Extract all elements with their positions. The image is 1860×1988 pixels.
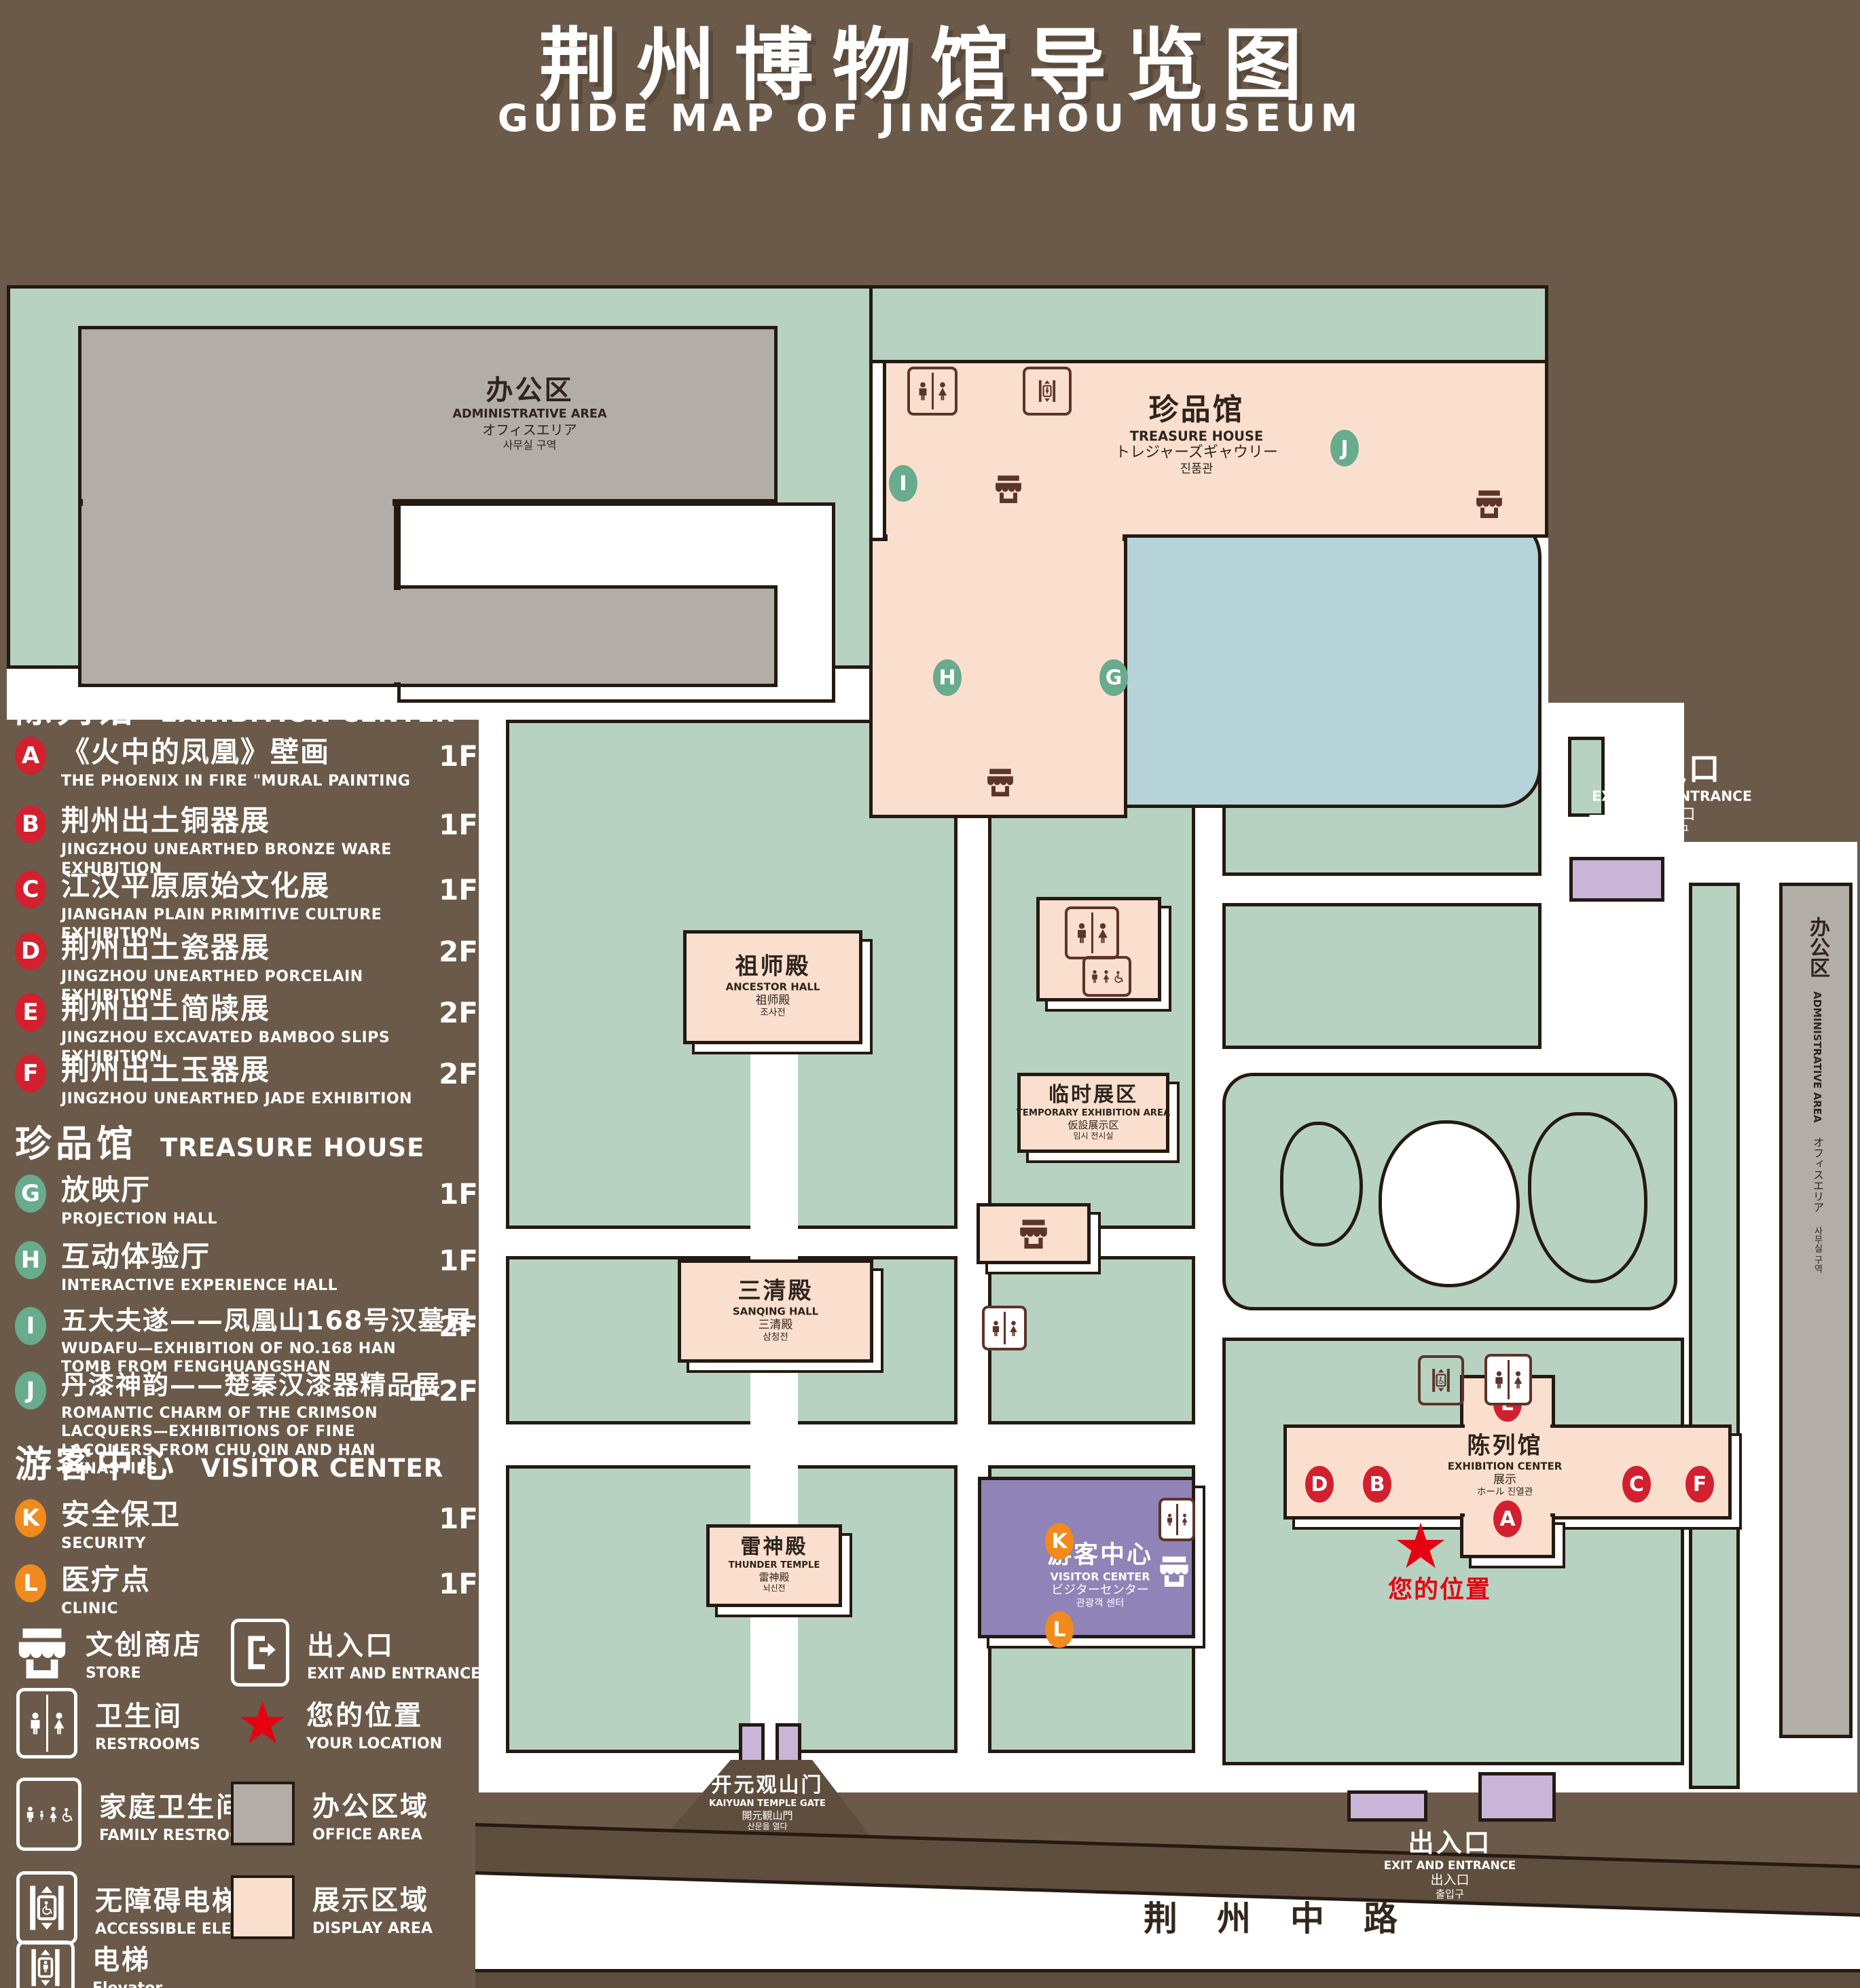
accessible-elevator-icon [16, 1871, 77, 1945]
thunder-temple-label: 雷神殿THUNDER TEMPLE 雷神殿뇌신전 [729, 1535, 820, 1594]
map-badge-A: A [1493, 1501, 1522, 1537]
restrooms-icon [1065, 906, 1119, 959]
badge-h: H [15, 1241, 46, 1279]
badge-l: L [15, 1564, 46, 1602]
exit-bottom-gatehouse-east [1478, 1772, 1556, 1822]
legend-item-l: L 医疗点CLINIC 1F [15, 1564, 482, 1619]
elevator-icon [16, 1940, 75, 1988]
guide-map-poster: 荆州博物馆导览图 GUIDE MAP OF JINGZHOU MUSEUM 办公… [0, 0, 1860, 1988]
store-icon [1019, 1218, 1048, 1249]
store-icon [1475, 489, 1503, 519]
your-location-label: 您的位置 [1388, 1570, 1491, 1605]
exit-icon [231, 1619, 289, 1687]
your-location-star-icon: ★ [1393, 1515, 1448, 1578]
temple-axis-path [750, 1042, 798, 1798]
garden-pond [1379, 1120, 1520, 1287]
legend-symbol-store: 文创商店STORE [16, 1623, 202, 1682]
badge-f: F [15, 1054, 46, 1092]
legend-symbol-your-location: ★ 您的位置YOUR LOCATION [236, 1693, 442, 1752]
map-badge-K: K [1045, 1523, 1074, 1560]
restrooms-icon [16, 1688, 77, 1759]
restrooms-icon [1484, 1354, 1532, 1405]
map-badge-J: J [1330, 430, 1359, 466]
family-restrooms-icon [1082, 956, 1131, 997]
legend-symbol-office-area: 办公区域OFFICE AREA [231, 1782, 429, 1845]
admin-area-label: 办公区ADMINISTRATIVE AREA オフィスエリア사무실 구역 [452, 374, 606, 452]
badge-i: I [15, 1307, 46, 1345]
ancestor-hall-label: 祖师殿ANCESTOR HALL 祖师殿조사전 [726, 953, 820, 1018]
legend-symbol-display-area: 展示区域DISPLAY AREA [231, 1875, 433, 1939]
exit-right-icon [1580, 812, 1622, 857]
admin-building-top [78, 326, 778, 502]
exit-bottom-gatehouse-west [1347, 1790, 1427, 1822]
restrooms-icon [1159, 1498, 1195, 1541]
store-icon [994, 474, 1023, 504]
badge-k: K [15, 1499, 46, 1537]
admin-building-bottom [397, 585, 778, 687]
map-badge-L: L [1045, 1611, 1074, 1648]
treasure-house-label: 珍品馆TREASURE HOUSE トレジャーズギャウリー진품관 [1115, 392, 1278, 477]
map-badge-C: C [1622, 1466, 1651, 1503]
store-icon [16, 1625, 68, 1680]
exhibition-center-label: 陈列馆EXHIBITION CENTER 展示ホール 진열관 [1448, 1432, 1563, 1498]
map-badge-B: B [1363, 1466, 1391, 1503]
admin-tower-label: 办公区 ADMINISTRATIVE AREA オフィスエリア 사무실 구역 [1790, 910, 1844, 1711]
legend-item-a: A 《火中的凤凰》壁画THE PHOENIX IN FIRE "MURAL PA… [15, 737, 482, 791]
legend-symbol-elevator: 电梯Elevator [16, 1938, 162, 1988]
badge-g: G [15, 1175, 46, 1213]
office-area-swatch [231, 1782, 295, 1845]
badge-d: D [15, 932, 46, 970]
badge-b: B [15, 805, 46, 843]
road-curb [475, 1969, 1860, 1988]
badge-c: C [15, 870, 46, 908]
legend-section-exhibition-center: 陈列馆EXHIBITION CENTER [15, 679, 455, 733]
page-subtitle: GUIDE MAP OF JINGZHOU MUSEUM [0, 96, 1860, 140]
legend-item-b: B 荆州出土铜器展JINGZHOU UNEARTHED BRONZE WARE … [15, 805, 482, 878]
display-area-swatch [231, 1875, 295, 1939]
legend-item-g: G 放映厅PROJECTION HALL 1F [15, 1175, 482, 1229]
legend-item-i: I 五大夫遂——凤凰山168号汉墓展WUDAFU—EXHIBITION OF N… [15, 1307, 482, 1377]
restrooms-icon [907, 367, 958, 416]
accessible-elevator-icon [1418, 1355, 1464, 1405]
lawn-west-lower [506, 1465, 958, 1753]
map-badge-F: F [1685, 1466, 1714, 1503]
map-badge-G: G [1099, 659, 1128, 696]
restrooms-icon [982, 1306, 1027, 1350]
badge-a: A [15, 737, 46, 775]
legend-section-treasure-house: 珍品馆TREASURE HOUSE [15, 1113, 424, 1167]
legend-item-h: H 互动体验厅INTERACTIVE EXPERIENCE HALL 1F [15, 1241, 482, 1295]
exit-bottom-label: 出入口EXIT AND ENTRANCE 出入口출입구 [1384, 1827, 1516, 1900]
kaiyuan-gate-label: 开元观山门KAIYUAN TEMPLE GATE 開元観山門산문을 열다 [709, 1773, 826, 1832]
map-badge-I: I [889, 465, 917, 502]
family-restrooms-icon [16, 1778, 81, 1851]
admin-building-left [78, 502, 397, 687]
map-badge-D: D [1305, 1466, 1334, 1503]
badge-e: E [15, 993, 46, 1031]
lawn-east-mid [1222, 903, 1542, 1049]
legend-symbol-exit: 出入口EXIT AND ENTRANCE [231, 1619, 481, 1687]
map-badge-H: H [933, 659, 962, 696]
legend-item-f: F 荆州出土玉器展JINGZHOU UNEARTHED JADE EXHIBIT… [15, 1054, 482, 1109]
sanqing-hall-label: 三清殿SANQING HALL 三清殿삼청전 [733, 1277, 818, 1343]
legend-item-k: K 安全保卫SECURITY 1F [15, 1499, 482, 1553]
store-icon [986, 767, 1015, 797]
legend-symbol-restrooms: 卫生间RESTROOMS [16, 1688, 200, 1759]
your-location-star-icon: ★ [236, 1694, 289, 1752]
lawn-east-strip [1689, 883, 1740, 1789]
elevator-icon [1023, 367, 1072, 416]
temporary-exhibition-label: 临时展区TEMPORARY EXHIBITION AREA 仮設展示区임시 전시… [1017, 1083, 1170, 1141]
exit-right-gatehouse [1569, 857, 1664, 902]
store-icon [1159, 1555, 1190, 1587]
badge-j: J [15, 1372, 46, 1410]
garden-islet-west [1280, 1122, 1363, 1247]
legend-section-visitor-center: 游客中心VISITOR CENTER [15, 1434, 443, 1488]
